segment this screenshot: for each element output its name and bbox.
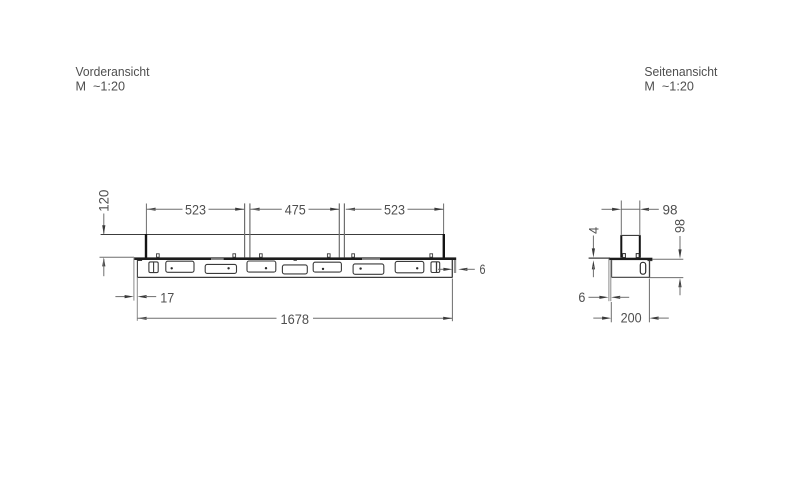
- svg-text:Seitenansicht: Seitenansicht: [644, 65, 717, 79]
- svg-text:M ~1:20: M ~1:20: [76, 79, 126, 93]
- svg-text:4: 4: [585, 227, 601, 234]
- svg-text:17: 17: [160, 289, 174, 305]
- svg-text:6: 6: [578, 289, 585, 305]
- svg-text:523: 523: [185, 202, 206, 218]
- svg-text:120: 120: [95, 189, 111, 211]
- svg-text:523: 523: [384, 202, 405, 218]
- svg-text:475: 475: [285, 202, 306, 218]
- svg-text:Vorderansicht: Vorderansicht: [76, 65, 151, 79]
- svg-text:M ~1:20: M ~1:20: [644, 79, 694, 93]
- svg-text:6: 6: [480, 261, 486, 277]
- svg-text:200: 200: [621, 310, 642, 326]
- svg-text:1678: 1678: [281, 311, 310, 327]
- svg-text:98: 98: [663, 202, 678, 218]
- svg-text:98: 98: [671, 219, 687, 233]
